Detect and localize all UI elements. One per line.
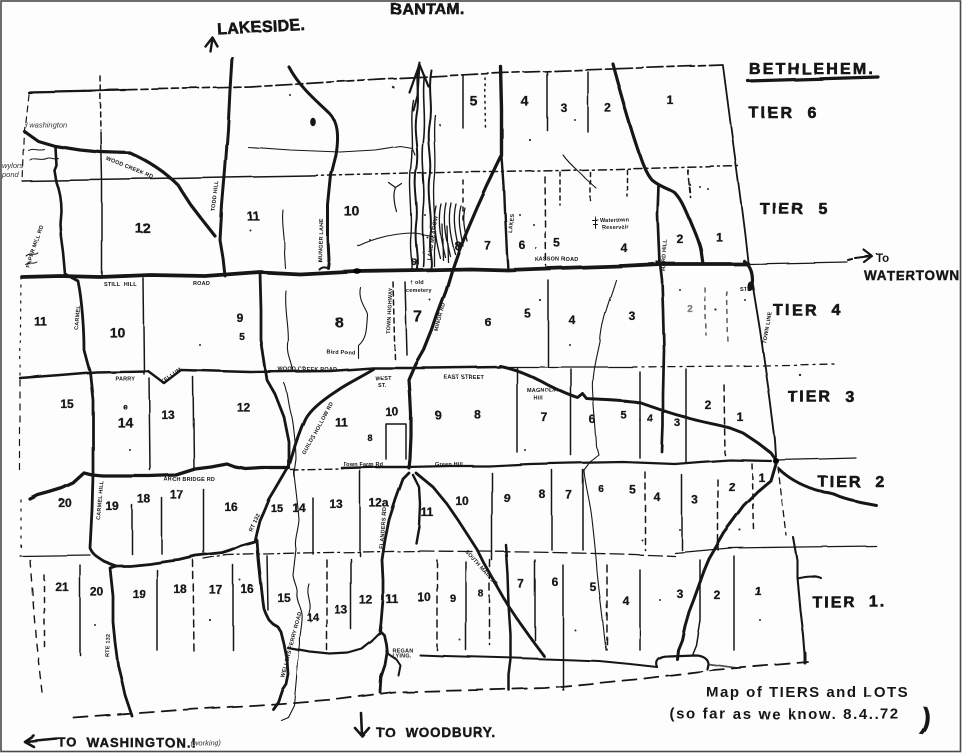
svg-text:7: 7 bbox=[484, 238, 491, 252]
svg-text:10: 10 bbox=[385, 405, 399, 419]
svg-text:1: 1 bbox=[755, 584, 762, 598]
svg-text:10: 10 bbox=[109, 324, 125, 340]
svg-text:4: 4 bbox=[621, 241, 628, 255]
svg-text:WATERTOWN: WATERTOWN bbox=[864, 268, 960, 283]
svg-text:8: 8 bbox=[539, 487, 546, 501]
svg-text:21: 21 bbox=[55, 580, 69, 594]
svg-text:7: 7 bbox=[541, 410, 548, 424]
svg-text:Bird Pond: Bird Pond bbox=[327, 350, 355, 356]
svg-text:BANTAM.: BANTAM. bbox=[390, 1, 465, 18]
svg-text:Hill: Hill bbox=[534, 396, 544, 402]
svg-text:4: 4 bbox=[623, 594, 630, 608]
svg-text:ROAD: ROAD bbox=[193, 281, 210, 287]
svg-text:wylors: wylors bbox=[2, 161, 24, 170]
svg-text:2: 2 bbox=[687, 304, 693, 315]
svg-text:8: 8 bbox=[474, 407, 481, 421]
svg-text:WEST: WEST bbox=[375, 376, 392, 382]
svg-text:4: 4 bbox=[521, 93, 529, 109]
svg-text:15: 15 bbox=[60, 397, 74, 411]
svg-text:Map of TIERS and LOTS: Map of TIERS and LOTS bbox=[706, 684, 909, 701]
svg-text:5: 5 bbox=[590, 580, 597, 594]
svg-text:18: 18 bbox=[137, 492, 151, 506]
svg-text:16: 16 bbox=[224, 500, 238, 514]
svg-text:5: 5 bbox=[629, 482, 636, 496]
svg-text:13: 13 bbox=[161, 408, 175, 422]
svg-text:3: 3 bbox=[629, 309, 636, 323]
svg-text:5: 5 bbox=[470, 93, 478, 109]
svg-text:7: 7 bbox=[566, 488, 573, 502]
svg-text:14: 14 bbox=[292, 501, 306, 515]
svg-text:6: 6 bbox=[552, 575, 559, 589]
svg-text:5: 5 bbox=[621, 410, 627, 422]
svg-text:6: 6 bbox=[590, 413, 597, 427]
svg-text:TIER 3: TIER 3 bbox=[788, 389, 856, 406]
svg-text:9: 9 bbox=[237, 311, 244, 325]
svg-text:4: 4 bbox=[569, 313, 576, 327]
svg-text:TIER 2: TIER 2 bbox=[818, 474, 886, 491]
svg-text:16: 16 bbox=[240, 582, 254, 596]
svg-text:20: 20 bbox=[90, 585, 104, 599]
svg-text:11: 11 bbox=[386, 592, 399, 606]
svg-text:† old: † old bbox=[410, 280, 424, 286]
svg-text:3: 3 bbox=[692, 493, 699, 507]
svg-text:STE: STE bbox=[740, 287, 751, 293]
svg-text:2: 2 bbox=[729, 480, 736, 494]
svg-text:STILL HILL: STILL HILL bbox=[104, 282, 137, 288]
svg-text:4: 4 bbox=[647, 413, 654, 425]
svg-text:3: 3 bbox=[677, 587, 684, 601]
svg-text:5: 5 bbox=[554, 236, 561, 250]
svg-text:RTE 132: RTE 132 bbox=[105, 634, 112, 657]
svg-text:e: e bbox=[123, 402, 128, 411]
svg-text:ɬ washington: ɬ washington bbox=[24, 120, 67, 129]
svg-text:8: 8 bbox=[335, 314, 343, 331]
svg-text:4: 4 bbox=[654, 490, 661, 504]
svg-text:WOOD CREEK ROAD: WOOD CREEK ROAD bbox=[278, 367, 337, 373]
svg-text:9: 9 bbox=[411, 257, 417, 268]
svg-text:2: 2 bbox=[714, 588, 721, 602]
svg-text:3: 3 bbox=[674, 417, 680, 429]
svg-text:6: 6 bbox=[598, 484, 604, 495]
svg-text:1: 1 bbox=[759, 471, 766, 485]
svg-text:14: 14 bbox=[117, 414, 133, 430]
svg-text:11: 11 bbox=[35, 315, 48, 329]
svg-text:MAGNOLIA: MAGNOLIA bbox=[527, 388, 559, 394]
svg-text:cemetery: cemetery bbox=[406, 288, 432, 294]
svg-text:TIER 6: TIER 6 bbox=[749, 105, 819, 122]
svg-text:12: 12 bbox=[359, 593, 373, 607]
svg-text:TIER 4: TIER 4 bbox=[773, 302, 843, 319]
svg-text:2: 2 bbox=[677, 232, 684, 246]
svg-text:8: 8 bbox=[478, 589, 484, 600]
svg-text:BETHLEHEM.: BETHLEHEM. bbox=[749, 61, 875, 78]
svg-text:Reservoir: Reservoir bbox=[602, 225, 630, 231]
svg-text:9: 9 bbox=[450, 593, 456, 605]
svg-text:EAST STREET: EAST STREET bbox=[444, 375, 485, 381]
svg-text:17: 17 bbox=[170, 488, 184, 502]
svg-text:pond: pond bbox=[1, 170, 20, 179]
svg-text:To: To bbox=[876, 253, 889, 265]
svg-text:Town Farm Rd: Town Farm Rd bbox=[343, 462, 383, 468]
svg-text:TO WOODBURY.: TO WOODBURY. bbox=[376, 725, 496, 740]
svg-text:13: 13 bbox=[329, 497, 343, 511]
svg-text:11: 11 bbox=[421, 505, 434, 519]
svg-text:ST.: ST. bbox=[378, 383, 387, 389]
svg-text:10: 10 bbox=[344, 203, 360, 219]
svg-text:TO WASHINGTON.!: TO WASHINGTON.! bbox=[58, 735, 196, 750]
svg-text:18: 18 bbox=[173, 582, 187, 596]
svg-text:6: 6 bbox=[485, 315, 492, 329]
svg-text:15: 15 bbox=[277, 591, 291, 605]
svg-text:KASSON ROAD: KASSON ROAD bbox=[535, 257, 578, 263]
svg-text:TIER 5: TIER 5 bbox=[760, 201, 830, 218]
svg-text:5: 5 bbox=[524, 306, 531, 320]
svg-text:LYING.: LYING. bbox=[392, 653, 411, 659]
svg-text:7: 7 bbox=[518, 577, 525, 591]
svg-text:2: 2 bbox=[605, 101, 612, 115]
svg-text:13: 13 bbox=[334, 603, 348, 617]
svg-text:PARRY: PARRY bbox=[115, 376, 135, 382]
svg-text:6: 6 bbox=[519, 238, 526, 252]
svg-text:19: 19 bbox=[105, 499, 119, 513]
svg-text:12: 12 bbox=[135, 220, 151, 236]
svg-text:15: 15 bbox=[271, 503, 283, 515]
svg-text:17: 17 bbox=[209, 583, 223, 597]
svg-text:19: 19 bbox=[132, 587, 146, 601]
svg-text:3: 3 bbox=[561, 101, 568, 115]
svg-text:9: 9 bbox=[435, 408, 442, 422]
svg-text:TIER 1.: TIER 1. bbox=[812, 594, 887, 611]
svg-text:8: 8 bbox=[455, 239, 462, 253]
svg-text:7: 7 bbox=[414, 309, 423, 326]
svg-text:1: 1 bbox=[667, 93, 674, 107]
svg-text:2: 2 bbox=[705, 398, 712, 412]
svg-text:11: 11 bbox=[247, 209, 260, 223]
svg-text:Watertown: Watertown bbox=[600, 218, 630, 224]
svg-text:(working): (working) bbox=[190, 738, 221, 747]
svg-text:10: 10 bbox=[455, 494, 469, 508]
svg-text:1: 1 bbox=[716, 230, 723, 244]
svg-text:10: 10 bbox=[417, 590, 431, 604]
svg-text:(so far as we know. 8.4..72: (so far as we know. 8.4..72 bbox=[670, 706, 900, 723]
svg-text:9: 9 bbox=[504, 491, 511, 505]
svg-text:8: 8 bbox=[367, 433, 372, 443]
svg-text:ARCH BRIDGE RD: ARCH BRIDGE RD bbox=[164, 477, 215, 483]
svg-text:1: 1 bbox=[737, 410, 744, 424]
svg-text:20: 20 bbox=[58, 496, 72, 510]
svg-text:14: 14 bbox=[307, 612, 320, 624]
svg-text:12: 12 bbox=[236, 400, 250, 414]
svg-text:5: 5 bbox=[239, 332, 245, 343]
svg-text:11: 11 bbox=[335, 415, 348, 429]
svg-text:Green Hill: Green Hill bbox=[435, 462, 463, 468]
